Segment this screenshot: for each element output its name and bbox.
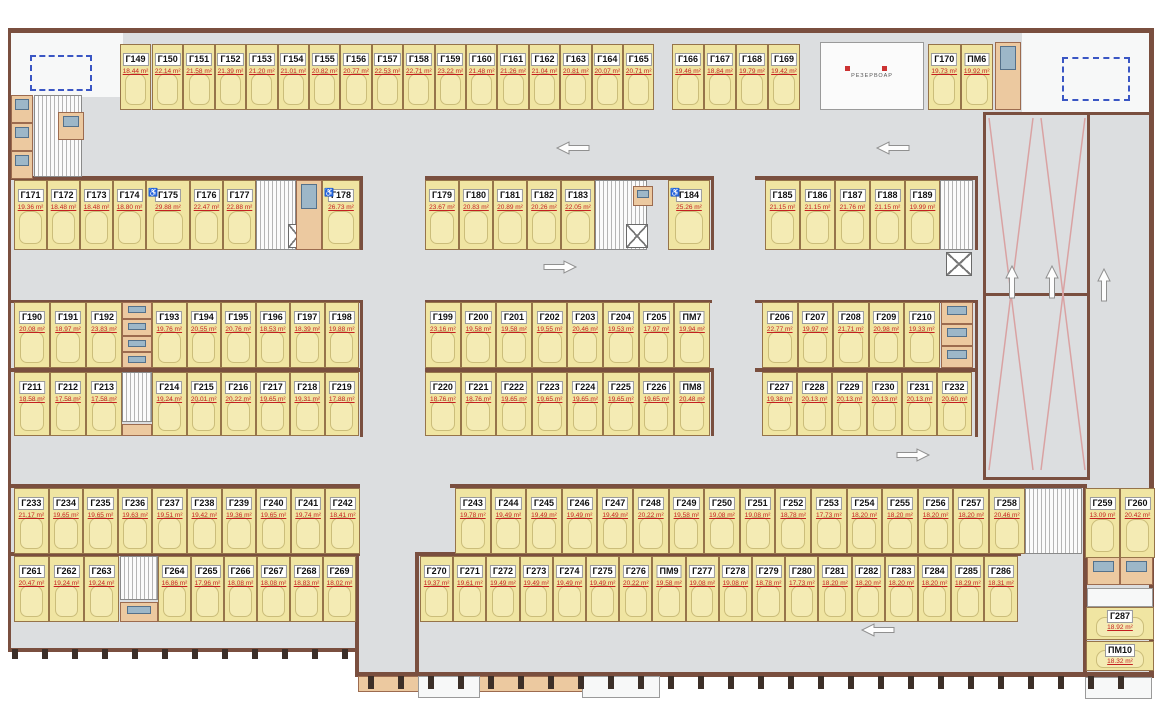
stall-area: 20.13 m² — [798, 396, 831, 404]
car-outline — [125, 73, 146, 104]
car-outline — [724, 585, 746, 616]
wall — [8, 648, 358, 652]
stall-area: 18.20 m² — [883, 512, 917, 520]
stall-area: 26.73 m² — [323, 204, 359, 212]
parking-stall-Г229: Г22920.13 m² — [832, 372, 867, 436]
stall-area: 18.29 m² — [952, 580, 983, 588]
parking-stall-Г175: Г17529.88 m²♿ — [146, 180, 190, 250]
stall-area: 19.97 m² — [799, 326, 833, 334]
stall-area: 18.48 m² — [81, 204, 112, 212]
car-outline — [20, 331, 45, 362]
stall-id: Г259 — [1089, 497, 1115, 510]
stall-id: Г229 — [836, 381, 862, 394]
column-tick — [42, 649, 48, 659]
fixture-icon — [15, 127, 29, 138]
parking-stall-Г268: Г26818.83 m² — [290, 556, 323, 622]
parking-stall-Г260: Г26020.42 m² — [1120, 488, 1155, 558]
reservoir-room: РЕЗЕРВОАР — [820, 42, 924, 110]
parking-stall-Г222: Г22219.65 m² — [496, 372, 532, 436]
stall-id: Г183 — [565, 189, 591, 202]
fixture-icon — [63, 116, 79, 127]
parking-stall-Г154: Г15421.01 m² — [278, 44, 309, 110]
utility-room — [633, 186, 653, 206]
stall-area: 18.08 m² — [258, 580, 289, 588]
stall-area: 19.65 m² — [84, 512, 117, 520]
parking-stall-Г152: Г15221.39 m² — [215, 44, 246, 110]
stall-area: 22.71 m² — [404, 68, 433, 76]
parking-stall-Г181: Г18120.89 m² — [493, 180, 527, 250]
stall-area: 20.47 m² — [15, 580, 48, 588]
car-outline — [492, 585, 514, 616]
car-outline — [568, 517, 592, 548]
stall-area: 18.20 m² — [954, 512, 988, 520]
stall-id: Г234 — [53, 497, 79, 510]
stall-area: 18.20 m² — [919, 580, 950, 588]
exterior-cutout — [8, 652, 357, 706]
fixture-icon — [128, 323, 147, 330]
fixture-icon — [947, 350, 967, 359]
utility-room — [941, 302, 973, 324]
parking-stall-Г221: Г22118.76 m² — [461, 372, 497, 436]
stall-id: Г209 — [873, 311, 899, 324]
car-outline — [625, 585, 647, 616]
wall — [975, 300, 978, 437]
stall-id: ПМ10 — [1105, 644, 1135, 657]
parking-stall-Г161: Г16121.26 m² — [497, 44, 528, 110]
parking-stall-Г234: Г23419.65 m² — [49, 488, 84, 554]
car-outline — [54, 517, 77, 548]
parking-stall-Г256: Г25618.20 m² — [918, 488, 954, 554]
car-outline — [709, 73, 731, 104]
parking-stall-Г236: Г23619.63 m² — [118, 488, 153, 554]
parking-stall-Г285: Г28518.29 m² — [951, 556, 984, 622]
car-outline — [377, 73, 398, 104]
stall-area: 20.71 m² — [624, 68, 653, 76]
stall-id: Г262 — [53, 565, 79, 578]
stall-area: 19.53 m² — [604, 326, 638, 334]
car-outline — [158, 400, 181, 430]
stall-id: Г174 — [116, 189, 142, 202]
stall-id: Г158 — [406, 53, 432, 66]
parking-stall-Г216: Г21620.22 m² — [221, 372, 256, 436]
stall-id: Г219 — [329, 381, 355, 394]
stall-area: 19.08 m² — [720, 580, 751, 588]
stall-id: Г154 — [280, 53, 306, 66]
stall-area: 18.76 m² — [462, 396, 496, 404]
parking-stall-Г188: Г18821.15 m² — [870, 180, 905, 250]
stall-id: Г216 — [225, 381, 251, 394]
stall-id: Г250 — [709, 497, 735, 510]
car-outline — [532, 517, 556, 548]
parking-stall-Г166: Г16619.46 m² — [672, 44, 704, 110]
stall-area: 21.15 m² — [801, 204, 834, 212]
car-outline — [502, 331, 526, 362]
column-tick — [428, 676, 434, 689]
stall-area: 20.98 m² — [870, 326, 904, 334]
parking-stall-Г283: Г28318.20 m² — [885, 556, 918, 622]
stall-id: Г191 — [55, 311, 81, 324]
parking-stall-Г171: Г17119.36 m² — [14, 180, 47, 250]
stall-id: Г215 — [191, 381, 217, 394]
stall-id: Г274 — [556, 565, 582, 578]
stall-area: 19.65 m² — [257, 396, 290, 404]
stall-id: Г217 — [260, 381, 286, 394]
car-outline — [295, 585, 317, 616]
parking-stall-Г153: Г15321.20 m² — [246, 44, 277, 110]
parking-stall-ПМ10: ПМ1018.32 m² — [1086, 641, 1154, 671]
parking-stall-Г200: Г20019.58 m² — [461, 302, 497, 368]
stall-area: 19.49 m² — [554, 580, 585, 588]
utility-room — [122, 319, 152, 336]
column-tick — [312, 649, 318, 659]
parking-stall-Г282: Г28218.20 m² — [852, 556, 885, 622]
car-outline — [163, 585, 185, 616]
stall-id: Г241 — [295, 497, 321, 510]
parking-stall-Г261: Г26120.47 m² — [14, 556, 49, 622]
stall-area: 19.49 m² — [521, 580, 552, 588]
column-tick — [728, 676, 734, 689]
car-outline — [261, 400, 284, 430]
parking-stall-Г214: Г21419.24 m² — [152, 372, 187, 436]
car-outline — [430, 211, 453, 244]
stall-area: 18.44 m² — [121, 68, 150, 76]
parking-stall-Г157: Г15722.53 m² — [372, 44, 403, 110]
stall-id: Г233 — [18, 497, 44, 510]
car-outline — [425, 585, 447, 616]
stall-id: Г236 — [122, 497, 148, 510]
car-outline — [314, 73, 335, 104]
stall-id: Г193 — [156, 311, 182, 324]
car-outline — [558, 585, 580, 616]
stall-area: 18.20 m² — [886, 580, 917, 588]
stall-area: 21.04 m² — [530, 68, 559, 76]
car-outline — [910, 331, 934, 362]
stall-area: 18.32 m² — [1087, 658, 1153, 666]
parking-stall-Г287: Г28718.92 m² — [1086, 607, 1154, 640]
stall-id: Г175 — [155, 189, 181, 202]
stall-area: 16.86 m² — [159, 580, 190, 588]
parking-stall-Г209: Г20920.98 m² — [869, 302, 905, 368]
stall-area: 19.65 m² — [50, 512, 83, 520]
parking-stall-Г262: Г26219.24 m² — [49, 556, 84, 622]
stall-id: Г256 — [923, 497, 949, 510]
parking-stall-Г232: Г23220.60 m² — [937, 372, 972, 436]
parking-stall-Г159: Г15923.22 m² — [435, 44, 466, 110]
wheelchair-icon: ♿ — [324, 188, 334, 197]
stall-area: 19.31 m² — [291, 396, 324, 404]
stall-id: Г172 — [50, 189, 76, 202]
parking-stall-Г277: Г27719.08 m² — [686, 556, 719, 622]
parking-stall-Г281: Г28118.20 m² — [818, 556, 851, 622]
stall-area: 21.76 m² — [836, 204, 869, 212]
parking-stall-ПМ7: ПМ719.94 m² — [674, 302, 710, 368]
stall-area: 19.88 m² — [326, 326, 359, 334]
parking-stall-Г167: Г16718.84 m² — [704, 44, 736, 110]
parking-stall-Г240: Г24019.65 m² — [256, 488, 291, 554]
stall-area: 18.92 m² — [1087, 624, 1153, 632]
car-outline — [741, 73, 763, 104]
parking-stall-Г177: Г17722.88 m² — [223, 180, 256, 250]
stall-id: Г220 — [430, 381, 456, 394]
stall-id: Г284 — [922, 565, 948, 578]
wall — [415, 552, 419, 676]
fixture-icon — [1000, 46, 1016, 70]
stall-id: Г276 — [623, 565, 649, 578]
car-outline — [189, 73, 210, 104]
column-tick — [848, 676, 854, 689]
stall-id: ПМ7 — [679, 311, 704, 324]
stall-id: Г194 — [191, 311, 217, 324]
stall-area: 19.58 m² — [653, 580, 684, 588]
utility-room — [11, 123, 33, 151]
car-outline — [196, 585, 218, 616]
stall-id: Г272 — [490, 565, 516, 578]
parking-stall-Г253: Г25317.73 m² — [811, 488, 847, 554]
parking-stall-Г251: Г25119.08 m² — [740, 488, 776, 554]
parking-stall-Г205: Г20517.97 m² — [639, 302, 675, 368]
car-outline — [158, 331, 181, 362]
fixture-icon — [15, 155, 29, 166]
stall-id: Г200 — [465, 311, 491, 324]
parking-stall-Г257: Г25718.20 m² — [953, 488, 989, 554]
utility-room — [122, 336, 152, 352]
stall-id: Г265 — [194, 565, 220, 578]
stall-id: Г269 — [326, 565, 352, 578]
parking-stall-Г237: Г23719.51 m² — [152, 488, 187, 554]
parking-stall-Г231: Г23120.13 m² — [902, 372, 937, 436]
parking-stall-Г193: Г19319.76 m² — [152, 302, 187, 368]
stall-area: 20.89 m² — [494, 204, 526, 212]
stall-area: 19.74 m² — [292, 512, 325, 520]
stall-id: Г237 — [157, 497, 183, 510]
car-outline — [803, 400, 827, 430]
lift-pad-left — [30, 55, 92, 91]
parking-stall-Г149: Г14918.44 m² — [120, 44, 151, 110]
parking-stall-ПМ8: ПМ820.48 m² — [674, 372, 710, 436]
fixture-icon — [1093, 561, 1114, 572]
car-outline — [924, 517, 948, 548]
car-outline — [791, 585, 813, 616]
stall-id: Г212 — [55, 381, 81, 394]
car-outline — [283, 73, 304, 104]
car-outline — [261, 331, 284, 362]
stall-id: Г198 — [329, 311, 355, 324]
utility-room — [120, 602, 158, 622]
stall-id: Г169 — [771, 53, 797, 66]
stall-id: Г278 — [722, 565, 748, 578]
parking-stall-Г215: Г21520.01 m² — [187, 372, 222, 436]
car-outline — [680, 400, 704, 430]
wall — [1087, 112, 1090, 480]
wall — [360, 300, 363, 437]
car-outline — [609, 400, 633, 430]
parking-stall-Г286: Г28618.31 m² — [984, 556, 1017, 622]
stall-area: 19.24 m² — [153, 396, 186, 404]
parking-stall-Г235: Г23519.65 m² — [83, 488, 118, 554]
column-tick — [818, 676, 824, 689]
car-outline — [990, 585, 1012, 616]
car-outline — [957, 585, 979, 616]
utility-room — [995, 42, 1021, 110]
parking-stall-Г186: Г18621.15 m² — [800, 180, 835, 250]
car-outline — [192, 400, 215, 430]
parking-stall-ПМ6: ПМ619.92 m² — [961, 44, 994, 110]
stall-id: Г164 — [594, 53, 620, 66]
car-outline — [56, 400, 81, 430]
column-tick — [12, 649, 18, 659]
stall-area: 13.09 m² — [1086, 512, 1119, 520]
stall-area: 19.38 m² — [763, 396, 796, 404]
stall-area: 20.26 m² — [528, 204, 560, 212]
parking-stall-Г279: Г27918.78 m² — [752, 556, 785, 622]
stall-id: Г275 — [590, 565, 616, 578]
car-outline — [639, 517, 663, 548]
wall — [983, 293, 1087, 296]
parking-stall-Г249: Г24919.58 m² — [669, 488, 705, 554]
stall-id: Г204 — [608, 311, 634, 324]
column-tick — [398, 676, 404, 689]
car-outline — [710, 517, 734, 548]
parking-stall-Г211: Г21118.58 m² — [14, 372, 50, 436]
column-tick — [488, 676, 494, 689]
car-outline — [193, 517, 216, 548]
stall-area: 19.46 m² — [673, 68, 703, 76]
parking-stall-Г274: Г27419.49 m² — [553, 556, 586, 622]
fixture-icon — [128, 306, 147, 313]
wall — [711, 176, 714, 250]
stall-id: Г261 — [18, 565, 44, 578]
car-outline — [431, 331, 455, 362]
car-outline — [857, 585, 879, 616]
parking-stall-Г190: Г19020.08 m² — [14, 302, 50, 368]
car-outline — [440, 73, 461, 104]
stall-id: Г179 — [429, 189, 455, 202]
stall-id: Г221 — [465, 381, 491, 394]
car-outline — [118, 211, 140, 244]
stall-id: Г192 — [91, 311, 117, 324]
stall-id: Г226 — [643, 381, 669, 394]
stall-id: Г168 — [739, 53, 765, 66]
car-outline — [768, 331, 792, 362]
parking-stall-Г160: Г16021.48 m² — [466, 44, 497, 110]
stall-area: 19.65 m² — [640, 396, 674, 404]
stall-id: Г165 — [626, 53, 652, 66]
stall-id: Г208 — [838, 311, 864, 324]
wheelchair-icon: ♿ — [148, 188, 158, 197]
stall-area: 20.60 m² — [938, 396, 971, 404]
car-outline — [824, 585, 846, 616]
stall-area: 18.83 m² — [291, 580, 322, 588]
elevator-shaft — [946, 252, 972, 276]
stall-area: 19.49 m² — [487, 580, 518, 588]
stall-area: 22.88 m² — [224, 204, 255, 212]
stall-area: 17.88 m² — [326, 396, 359, 404]
wall — [711, 368, 714, 436]
stall-area: 17.73 m² — [812, 512, 846, 520]
parking-stall-Г180: Г18020.83 m² — [459, 180, 493, 250]
parking-stall-Г189: Г18919.99 m² — [905, 180, 940, 250]
parking-stall-Г213: Г21317.58 m² — [86, 372, 122, 436]
parking-stall-Г244: Г24419.49 m² — [491, 488, 527, 554]
stall-area: 21.20 m² — [247, 68, 276, 76]
car-outline — [746, 517, 770, 548]
car-outline — [943, 400, 967, 430]
column-tick — [132, 649, 138, 659]
parking-stall-Г156: Г15620.77 m² — [340, 44, 371, 110]
car-outline — [20, 517, 43, 548]
stall-area: 21.17 m² — [15, 512, 48, 520]
parking-stall-Г150: Г15022.14 m² — [152, 44, 183, 110]
car-outline — [459, 585, 481, 616]
parking-stall-Г210: Г21019.33 m² — [904, 302, 940, 368]
stall-area: 19.58 m² — [670, 512, 704, 520]
fixture-icon — [15, 99, 29, 110]
stall-id: Г246 — [567, 497, 593, 510]
car-outline — [431, 400, 455, 430]
car-outline — [158, 517, 181, 548]
parking-stall-Г164: Г16420.07 m² — [592, 44, 623, 110]
column-tick — [222, 649, 228, 659]
stall-id: Г251 — [745, 497, 771, 510]
stall-id: Г235 — [87, 497, 113, 510]
stall-area: 21.48 m² — [467, 68, 496, 76]
car-outline — [346, 73, 367, 104]
parking-stall-Г158: Г15822.71 m² — [403, 44, 434, 110]
utility-room — [122, 302, 152, 319]
car-outline — [803, 331, 827, 362]
utility-room — [941, 324, 973, 346]
stall-area: 20.13 m² — [903, 396, 936, 404]
column-tick — [668, 676, 674, 689]
car-outline — [838, 400, 862, 430]
stall-id: Г160 — [469, 53, 495, 66]
parking-stall-Г266: Г26618.08 m² — [224, 556, 257, 622]
fixture-icon — [128, 356, 147, 363]
column-tick — [608, 676, 614, 689]
car-outline — [888, 517, 912, 548]
parking-stall-Г225: Г22519.65 m² — [603, 372, 639, 436]
parking-stall-Г192: Г19223.83 m² — [86, 302, 122, 368]
stall-area: 18.76 m² — [426, 396, 460, 404]
stall-id: Г213 — [91, 381, 117, 394]
stall-id: Г205 — [643, 311, 669, 324]
stall-id: Г207 — [802, 311, 828, 324]
stall-id: Г227 — [766, 381, 792, 394]
car-outline — [228, 211, 250, 244]
parking-stall-Г227: Г22719.38 m² — [762, 372, 797, 436]
parking-stall-Г272: Г27219.49 m² — [486, 556, 519, 622]
car-outline — [251, 73, 272, 104]
exterior-room — [582, 676, 660, 698]
stall-area: 18.08 m² — [225, 580, 256, 588]
utility-room — [58, 112, 84, 140]
car-outline — [19, 211, 41, 244]
car-outline — [92, 400, 117, 430]
car-outline — [933, 73, 955, 104]
column-tick — [162, 649, 168, 659]
stall-area: 21.58 m² — [184, 68, 213, 76]
stall-id: Г150 — [155, 53, 181, 66]
column-tick — [1058, 676, 1064, 689]
car-outline — [229, 585, 251, 616]
stall-area: 21.26 m² — [498, 68, 527, 76]
car-outline — [20, 400, 45, 430]
stall-id: Г222 — [501, 381, 527, 394]
stall-id: Г280 — [789, 565, 815, 578]
parking-stall-Г207: Г20719.97 m² — [798, 302, 834, 368]
stall-id: Г287 — [1107, 610, 1133, 623]
stall-id: Г255 — [887, 497, 913, 510]
